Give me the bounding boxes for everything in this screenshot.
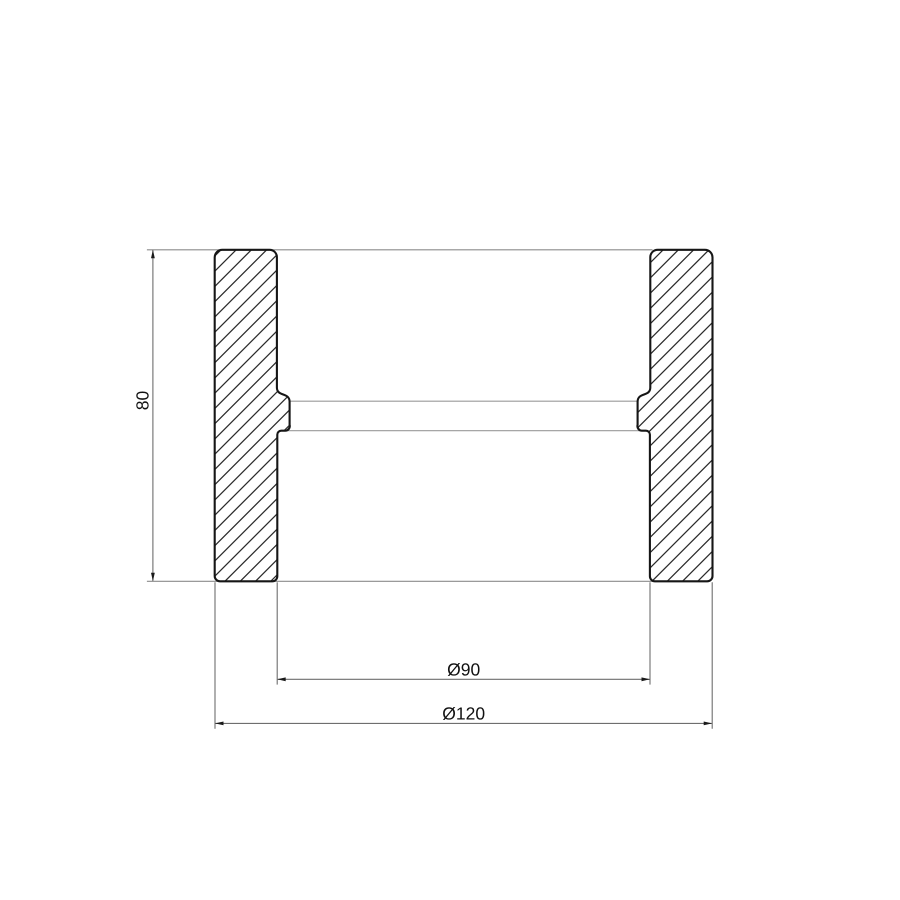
svg-text:Ø120: Ø120 [442, 704, 485, 724]
svg-text:Ø90: Ø90 [447, 659, 480, 679]
svg-text:80: 80 [133, 391, 153, 411]
